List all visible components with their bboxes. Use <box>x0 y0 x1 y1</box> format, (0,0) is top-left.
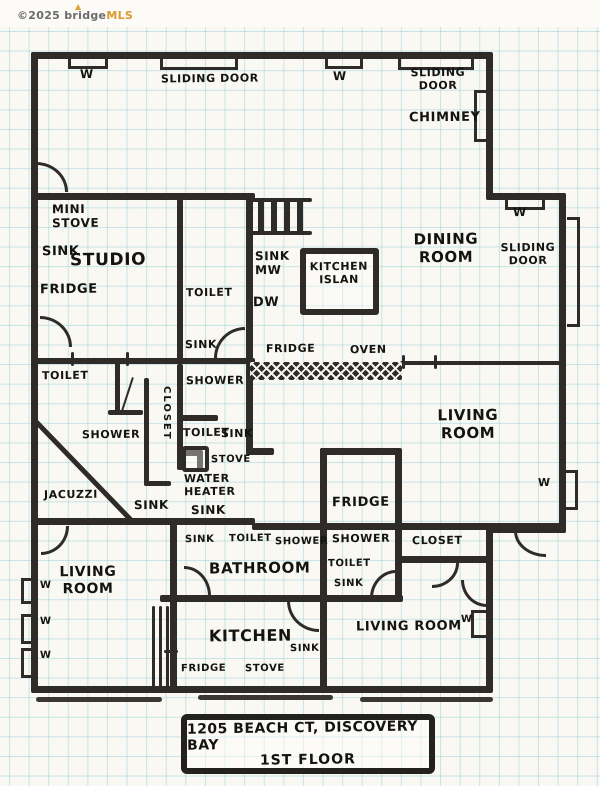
label-toilet-left: TOILET <box>42 370 89 383</box>
stairs-top-tread-4 <box>297 198 303 235</box>
door-tick-3 <box>402 355 405 369</box>
sliding-door-bracket-top-left <box>160 57 238 70</box>
deck-line-1 <box>36 697 162 702</box>
label-sink-mw: SINK MW <box>255 249 290 278</box>
deck-line-2 <box>198 695 333 700</box>
bridgemls-flame-icon: ▲ <box>75 2 81 11</box>
wall:wall-closet-left <box>144 378 149 486</box>
label-mini-stove: MINI STOVE <box>52 202 99 231</box>
label-bathroom-toilet: TOILET <box>229 533 272 545</box>
wall:wall-shower-room-bottom <box>180 415 218 421</box>
label-closet-right: CLOSET <box>412 535 463 548</box>
watermark-brand: MLS <box>106 9 133 22</box>
label-window-right: W <box>538 477 551 490</box>
label-sink-mid-left: SINK <box>185 339 217 352</box>
wall:wall-lower-right <box>252 523 565 530</box>
window-bracket-right <box>565 470 578 510</box>
label-bathroom: BATHROOM <box>209 559 311 578</box>
label-living-room-bottom-right: LIVING ROOM <box>356 618 462 634</box>
window-bracket-bottom-right <box>471 610 486 638</box>
window-bracket-left-2 <box>21 614 35 644</box>
label-bathroom-shower: SHOWER <box>275 536 328 548</box>
door-arc-back-door <box>514 531 546 557</box>
label-fridge-room: FRIDGE <box>332 495 390 511</box>
door-arc-center-room <box>214 327 245 358</box>
stairs-bottom-line-2 <box>159 606 162 688</box>
stairs-bottom-line-1 <box>152 606 155 688</box>
wall:wall-y450-right <box>320 448 402 455</box>
label-closet-vertical: CLOSET <box>160 386 172 441</box>
sliding-door-bracket-right <box>567 217 580 327</box>
stove-box <box>182 446 209 472</box>
label-window-left-3: W <box>40 650 52 662</box>
title-floor: 1ST FLOOR <box>260 751 356 768</box>
door-arc-toilet-left <box>40 316 72 347</box>
label-oven: OVEN <box>350 344 387 357</box>
label-kitchen-fridge: FRIDGE <box>181 663 226 675</box>
label-window-left-1: W <box>40 580 52 592</box>
wall:wall-shower-stall-stub <box>108 410 143 415</box>
wall:wall-closet-stub <box>144 481 171 486</box>
label-kitchen-stove: STOVE <box>245 663 285 675</box>
label-living-room-left: LIVING ROOM <box>56 564 120 598</box>
label-stove-mid: STOVE <box>211 454 251 466</box>
label-kitchen-sink: SINK <box>290 643 320 655</box>
wall:wall-studio-divider <box>177 193 183 364</box>
wall:wall-mid-right-thin <box>400 361 560 365</box>
label-living-room-right: LIVING ROOM <box>436 407 500 443</box>
label-shower-room-sink: SINK <box>334 578 364 590</box>
label-kitchen-island: KITCHEN ISLAN <box>300 261 378 288</box>
stairs-top-tread-1 <box>258 198 264 235</box>
wall:wall-studio-bottom <box>31 193 255 200</box>
label-studio: STUDIO <box>70 250 146 271</box>
label-shower-room-toilet: TOILET <box>328 558 371 570</box>
window-bracket-top-mid <box>325 57 363 69</box>
wall:wall-lower-left <box>31 518 255 525</box>
door-arc-living-left <box>41 526 69 555</box>
door-tick-4 <box>434 355 437 369</box>
label-sliding-door-right: SLIDING DOOR <box>498 242 558 269</box>
label-window-left-2: W <box>40 616 52 628</box>
door-arc-living-right-1 <box>432 563 459 588</box>
title-box: 1205 BEACH CT, DISCOVERY BAY 1ST FLOOR <box>181 714 435 774</box>
wall:wall-center-divider <box>246 196 253 363</box>
label-window-bottom-right: W <box>461 614 473 626</box>
stairs-bottom-line-3 <box>166 606 169 688</box>
label-jacuzzi: JACUZZI <box>44 489 98 503</box>
stairs-bottom-line-4 <box>172 606 175 688</box>
label-sink-mid: SINK <box>221 428 253 441</box>
label-window-jog: W <box>513 205 527 219</box>
wall:wall-living-top <box>398 556 490 563</box>
door-arc-studio <box>36 162 68 192</box>
stairs-top-tread-3 <box>284 198 290 235</box>
door-tick-1 <box>71 352 74 366</box>
window-bracket-left-1 <box>21 578 35 604</box>
label-fridge-counter: FRIDGE <box>266 343 315 356</box>
watermark-copyright: ©2025 bridge <box>17 9 106 22</box>
label-chimney: CHIMNEY <box>409 110 481 126</box>
wall:wall-kitchen-top <box>160 595 403 602</box>
stairs-bottom-tick <box>164 650 178 653</box>
label-dw: DW <box>253 295 280 311</box>
wall:wall-shower-room-right <box>395 450 402 598</box>
wall:wall-exterior-bottom <box>31 686 493 693</box>
label-sink-jacuzzi: SINK <box>134 498 169 513</box>
label-bathroom-sink: SINK <box>185 534 215 546</box>
door-arc-shower-room <box>370 570 396 598</box>
deck-line-3 <box>360 697 493 702</box>
label-sink-water-heater: SINK <box>191 503 226 518</box>
wall:wall-shower-stall <box>115 362 120 414</box>
door-arc-bathroom <box>184 566 211 596</box>
label-kitchen: KITCHEN <box>209 627 292 647</box>
label-water-heater: WATER HEATER <box>184 473 236 499</box>
door-arc-living-right-2 <box>461 580 487 607</box>
door-tick-2 <box>126 352 129 366</box>
label-dining-room: DINING ROOM <box>410 231 482 267</box>
wall:wall-mid-left <box>31 358 255 364</box>
label-shower-left: SHOWER <box>82 429 140 443</box>
wall:wall-exterior-right-lower <box>486 526 493 692</box>
label-studio-fridge: FRIDGE <box>40 282 98 298</box>
label-window-top-left: W <box>80 67 94 81</box>
stairs-top-tread-2 <box>271 198 277 235</box>
hatched-counter-wall <box>250 362 402 380</box>
wall:wall-kitchen-right <box>320 448 327 693</box>
graph-paper: ©2025 bridgeMLS ▲ WSLIDING DOORWSLIDING … <box>0 0 600 786</box>
label-toilet-center: TOILET <box>186 287 233 300</box>
label-sliding-door-top-left: SLIDING DOOR <box>161 72 259 86</box>
label-window-top-mid: W <box>333 69 347 83</box>
label-shower-mid: SHOWER <box>186 375 244 389</box>
window-bracket-left-3 <box>21 648 35 678</box>
shower-mark-stroke <box>121 377 134 412</box>
label-sliding-door-top-mid: SLIDING DOOR <box>400 67 476 94</box>
title-address: 1205 BEACH CT, DISCOVERY BAY <box>187 718 429 753</box>
bridgemls-watermark: ©2025 bridgeMLS ▲ <box>17 9 133 22</box>
label-shower-room-shower: SHOWER <box>332 533 390 547</box>
